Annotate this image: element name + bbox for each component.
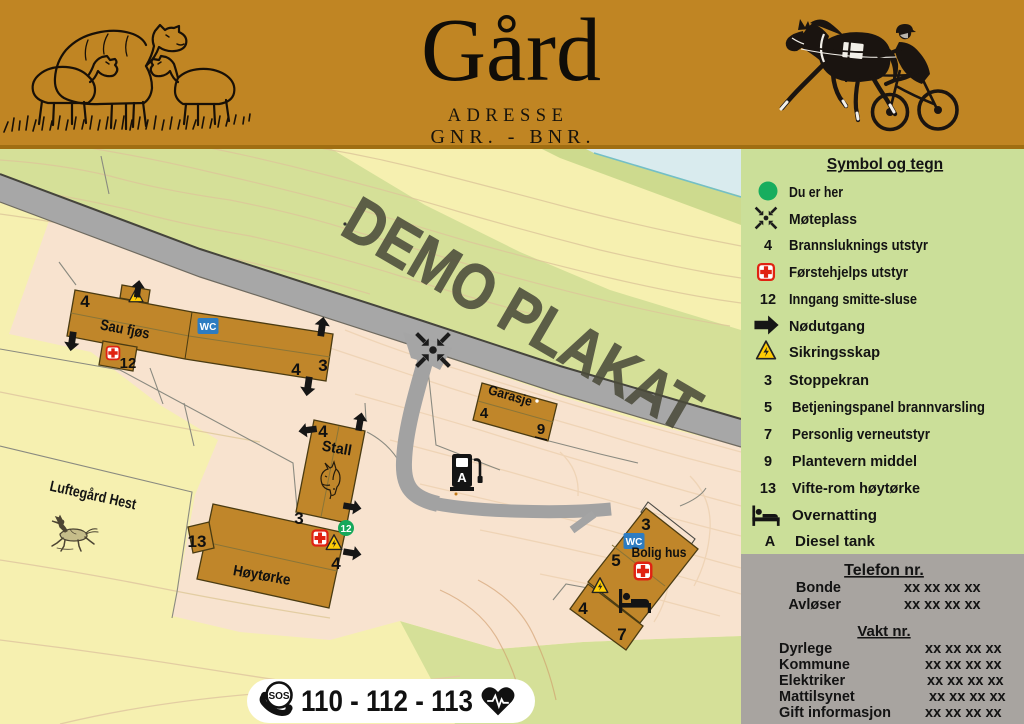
svg-text:Inngang smitte-sluse: Inngang smitte-sluse: [789, 292, 917, 308]
svg-text:xx xx xx xx: xx xx xx xx: [927, 673, 1004, 689]
svg-text:4: 4: [318, 422, 328, 441]
svg-text:4: 4: [331, 554, 341, 573]
svg-text:xx xx xx xx: xx xx xx xx: [929, 689, 1006, 705]
svg-text:xx xx xx xx: xx xx xx xx: [904, 597, 981, 613]
svg-text:Personlig verneutstyr: Personlig verneutstyr: [792, 427, 930, 443]
svg-text:ADRESSE: ADRESSE: [448, 106, 569, 126]
svg-text:7: 7: [764, 427, 772, 443]
svg-text:Førstehjelps utstyr: Førstehjelps utstyr: [789, 265, 908, 281]
svg-text:Vakt nr.: Vakt nr.: [857, 623, 910, 640]
svg-text:Avløser: Avløser: [788, 597, 841, 613]
svg-text:Symbol og tegn: Symbol og tegn: [827, 156, 943, 173]
svg-text:Plantevern middel: Plantevern middel: [792, 454, 917, 470]
svg-text:Overnatting: Overnatting: [792, 508, 877, 524]
svg-text:Kommune: Kommune: [779, 657, 850, 673]
svg-text:Stoppekran: Stoppekran: [789, 373, 869, 389]
svg-text:3: 3: [764, 373, 772, 389]
svg-text:A: A: [765, 534, 776, 550]
svg-text:4: 4: [480, 405, 489, 422]
svg-text:4: 4: [764, 238, 772, 254]
svg-text:Betjeningspanel brannvarsling: Betjeningspanel brannvarsling: [792, 400, 985, 416]
svg-text:Elektriker: Elektriker: [779, 673, 845, 689]
svg-text:3: 3: [641, 515, 650, 534]
svg-text:12: 12: [340, 524, 352, 535]
svg-text:4: 4: [578, 599, 588, 618]
svg-text:3: 3: [294, 509, 303, 528]
svg-text:Sikringsskap: Sikringsskap: [789, 345, 880, 361]
svg-text:xx xx xx xx: xx xx xx xx: [904, 580, 981, 596]
svg-text:13: 13: [188, 532, 207, 551]
svg-text:Gift informasjon: Gift informasjon: [779, 705, 891, 721]
svg-text:5: 5: [611, 551, 620, 570]
svg-text:110 - 112 - 113: 110 - 112 - 113: [301, 685, 473, 718]
svg-text:xx xx xx xx: xx xx xx xx: [925, 705, 1002, 721]
svg-text:9: 9: [537, 421, 545, 438]
svg-text:SOS: SOS: [268, 691, 289, 702]
svg-text:12: 12: [120, 355, 137, 372]
svg-text:Bolig hus: Bolig hus: [632, 544, 687, 560]
svg-text:9: 9: [764, 454, 772, 470]
svg-text:7: 7: [617, 625, 626, 644]
svg-text:GNR. - BNR.: GNR. - BNR.: [430, 126, 595, 148]
svg-text:A: A: [457, 470, 467, 485]
svg-text:Dyrlege: Dyrlege: [779, 641, 832, 657]
svg-text:Møteplass: Møteplass: [789, 212, 857, 228]
svg-text:Vifte-rom høytørke: Vifte-rom høytørke: [792, 481, 920, 497]
svg-text:13: 13: [760, 481, 776, 497]
svg-text:Du er her: Du er her: [789, 185, 843, 201]
svg-text:Telefon nr.: Telefon nr.: [844, 562, 924, 579]
svg-text:Bonde: Bonde: [796, 580, 841, 596]
svg-text:Brannsluknings utstyr: Brannsluknings utstyr: [789, 238, 928, 254]
svg-text:5: 5: [764, 400, 772, 416]
svg-text:Diesel tank: Diesel tank: [795, 534, 876, 550]
svg-text:12: 12: [760, 292, 776, 308]
svg-text:Mattilsynet: Mattilsynet: [779, 689, 855, 705]
svg-text:Nødutgang: Nødutgang: [789, 319, 865, 335]
svg-text:xx xx xx xx: xx xx xx xx: [925, 657, 1002, 673]
svg-text:3: 3: [318, 356, 327, 375]
svg-text:Gård: Gård: [421, 1, 601, 100]
svg-text:xx xx xx xx: xx xx xx xx: [925, 641, 1002, 657]
svg-text:4: 4: [80, 292, 90, 311]
svg-text:4: 4: [291, 360, 301, 379]
